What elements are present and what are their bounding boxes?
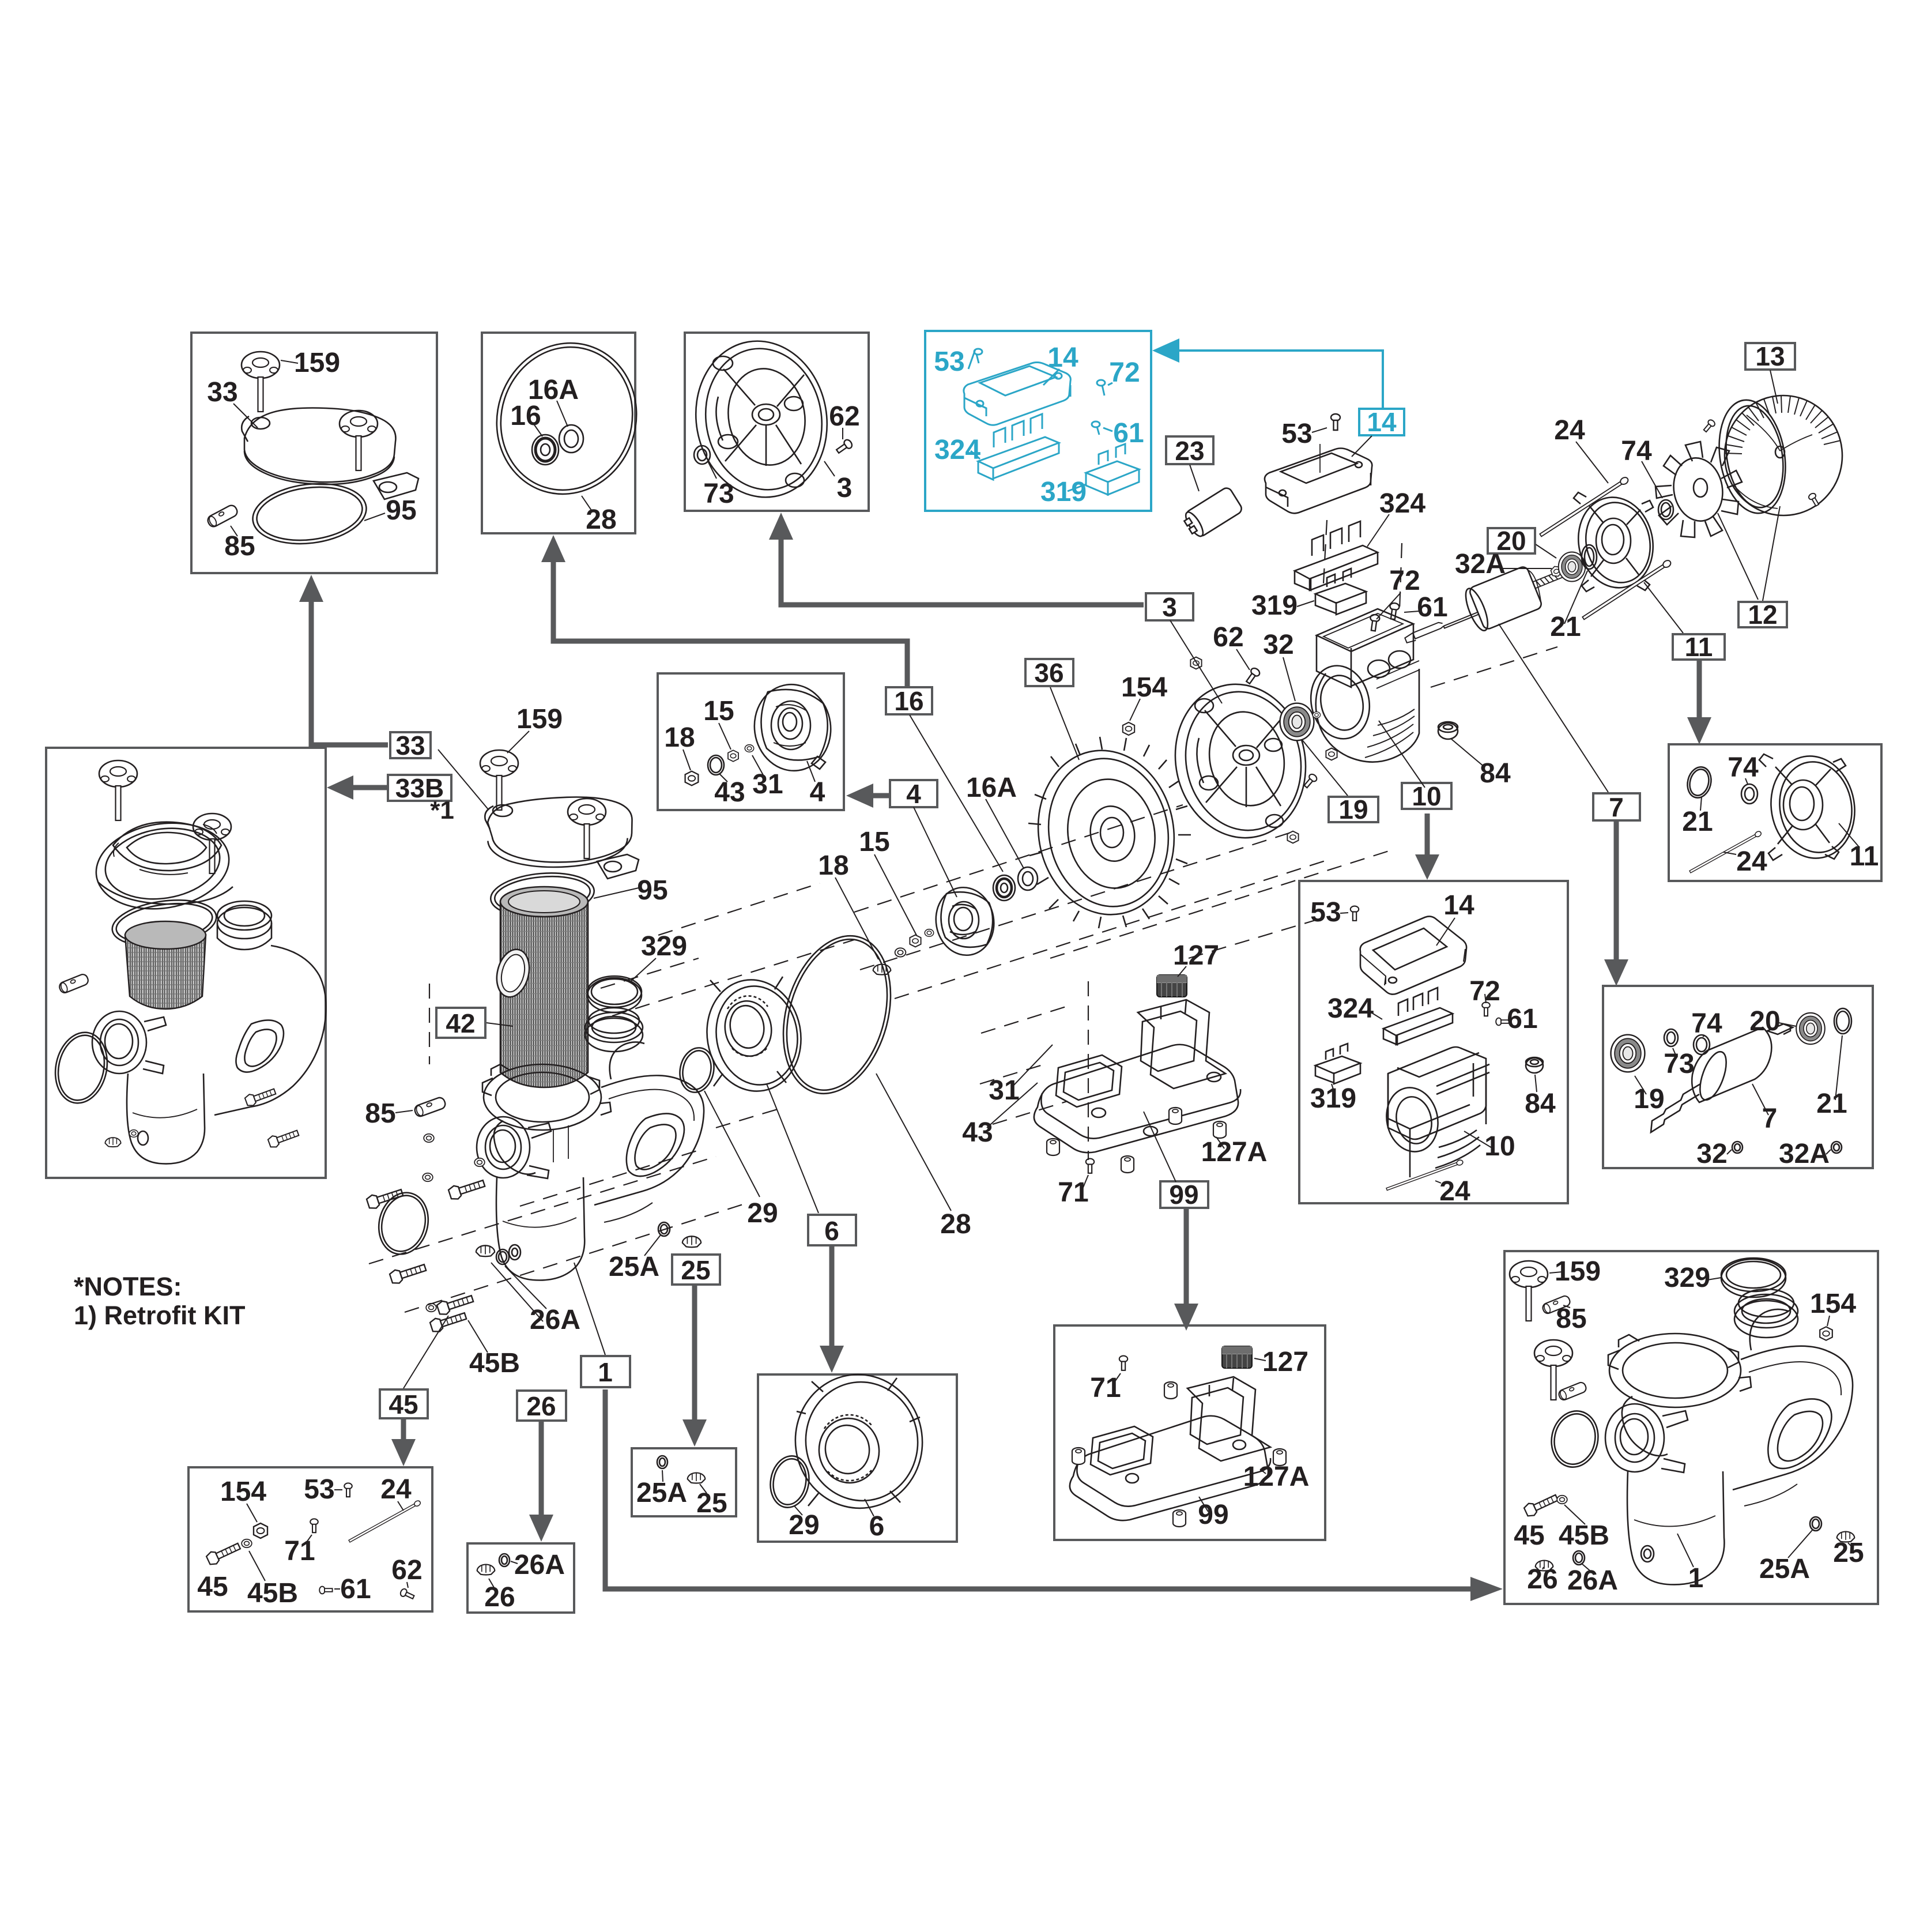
svg-text:6: 6 xyxy=(824,1216,839,1246)
svg-text:329: 329 xyxy=(641,931,687,962)
svg-text:154: 154 xyxy=(220,1477,266,1507)
svg-text:7: 7 xyxy=(1609,792,1624,822)
svg-text:26A: 26A xyxy=(514,1550,565,1580)
svg-text:159: 159 xyxy=(516,704,563,735)
svg-text:16: 16 xyxy=(510,401,541,431)
svg-text:11: 11 xyxy=(1685,632,1713,662)
svg-text:324: 324 xyxy=(934,435,980,465)
svg-text:74: 74 xyxy=(1691,1008,1722,1039)
svg-text:26: 26 xyxy=(526,1391,556,1421)
svg-text:10: 10 xyxy=(1412,781,1441,811)
svg-text:72: 72 xyxy=(1109,357,1140,388)
svg-text:127A: 127A xyxy=(1243,1462,1310,1492)
svg-text:36: 36 xyxy=(1034,658,1063,688)
svg-text:154: 154 xyxy=(1810,1289,1856,1319)
svg-text:31: 31 xyxy=(752,769,783,800)
svg-text:15: 15 xyxy=(859,827,889,857)
svg-text:29: 29 xyxy=(747,1198,778,1229)
svg-text:73: 73 xyxy=(1664,1049,1694,1079)
svg-text:1) Retrofit KIT: 1) Retrofit KIT xyxy=(74,1301,246,1330)
svg-text:11: 11 xyxy=(1850,841,1879,872)
svg-text:85: 85 xyxy=(224,531,255,562)
svg-text:33: 33 xyxy=(395,730,425,760)
svg-text:4: 4 xyxy=(906,779,921,809)
svg-text:53: 53 xyxy=(934,347,964,377)
svg-text:16A: 16A xyxy=(966,773,1017,803)
svg-text:61: 61 xyxy=(1507,1004,1537,1034)
svg-text:61: 61 xyxy=(1417,592,1447,623)
svg-text:25A: 25A xyxy=(609,1252,659,1282)
svg-text:53: 53 xyxy=(1281,419,1312,449)
svg-text:19: 19 xyxy=(1634,1084,1664,1114)
svg-text:15: 15 xyxy=(703,696,734,726)
svg-text:73: 73 xyxy=(703,479,734,509)
svg-text:53: 53 xyxy=(304,1474,334,1505)
svg-text:26: 26 xyxy=(484,1582,515,1613)
svg-text:24: 24 xyxy=(380,1474,412,1505)
svg-text:127: 127 xyxy=(1262,1347,1308,1377)
svg-text:*NOTES:: *NOTES: xyxy=(74,1272,182,1301)
svg-text:33: 33 xyxy=(207,377,237,408)
svg-text:14: 14 xyxy=(1367,407,1397,437)
svg-text:53: 53 xyxy=(1310,897,1341,928)
svg-text:72: 72 xyxy=(1389,566,1420,596)
svg-text:45B: 45B xyxy=(469,1348,520,1379)
svg-text:99: 99 xyxy=(1169,1180,1198,1210)
svg-text:24: 24 xyxy=(1736,846,1767,877)
svg-text:127A: 127A xyxy=(1201,1137,1268,1168)
svg-text:62: 62 xyxy=(1213,622,1243,653)
svg-text:84: 84 xyxy=(1525,1089,1556,1119)
svg-text:21: 21 xyxy=(1816,1089,1847,1119)
svg-text:25A: 25A xyxy=(1759,1554,1810,1584)
svg-text:21: 21 xyxy=(1550,612,1581,642)
svg-text:95: 95 xyxy=(386,495,416,526)
svg-text:28: 28 xyxy=(940,1209,971,1240)
svg-text:62: 62 xyxy=(829,401,859,432)
svg-text:24: 24 xyxy=(1554,415,1585,446)
svg-text:1: 1 xyxy=(598,1357,613,1387)
svg-text:26A: 26A xyxy=(530,1305,580,1335)
svg-text:18: 18 xyxy=(664,722,695,753)
svg-text:4: 4 xyxy=(810,777,825,808)
svg-text:159: 159 xyxy=(294,348,340,378)
svg-text:71: 71 xyxy=(1090,1373,1121,1403)
svg-text:24: 24 xyxy=(1439,1176,1470,1207)
svg-text:20: 20 xyxy=(1749,1006,1780,1037)
svg-text:85: 85 xyxy=(365,1098,395,1129)
svg-text:14: 14 xyxy=(1047,342,1078,373)
svg-text:45: 45 xyxy=(1514,1520,1544,1551)
svg-text:14: 14 xyxy=(1443,890,1474,921)
svg-text:42: 42 xyxy=(446,1008,475,1038)
svg-text:45: 45 xyxy=(197,1572,228,1602)
svg-text:43: 43 xyxy=(962,1117,993,1148)
svg-text:71: 71 xyxy=(284,1536,315,1566)
svg-text:154: 154 xyxy=(1121,672,1167,703)
svg-text:84: 84 xyxy=(1480,758,1511,789)
svg-text:13: 13 xyxy=(1755,341,1785,371)
svg-text:319: 319 xyxy=(1040,477,1087,507)
svg-text:32: 32 xyxy=(1696,1139,1727,1169)
svg-text:32A: 32A xyxy=(1455,549,1506,579)
svg-text:45B: 45B xyxy=(1559,1520,1609,1551)
svg-text:3: 3 xyxy=(837,473,853,503)
svg-text:61: 61 xyxy=(1113,418,1144,449)
svg-text:43: 43 xyxy=(714,777,745,808)
svg-text:1: 1 xyxy=(1688,1563,1704,1594)
svg-text:329: 329 xyxy=(1664,1263,1710,1293)
svg-text:26A: 26A xyxy=(1567,1565,1618,1596)
svg-text:21: 21 xyxy=(1682,807,1713,837)
svg-text:25: 25 xyxy=(681,1255,710,1285)
svg-text:25A: 25A xyxy=(636,1478,687,1508)
svg-text:74: 74 xyxy=(1621,436,1652,466)
svg-text:61: 61 xyxy=(340,1574,371,1605)
svg-text:18: 18 xyxy=(818,850,848,881)
svg-text:45: 45 xyxy=(389,1389,418,1419)
svg-text:23: 23 xyxy=(1175,436,1204,466)
svg-text:62: 62 xyxy=(391,1555,422,1585)
svg-text:19: 19 xyxy=(1338,794,1368,824)
svg-text:16: 16 xyxy=(894,686,923,716)
svg-text:6: 6 xyxy=(869,1511,885,1542)
svg-text:*1: *1 xyxy=(430,796,454,824)
svg-text:319: 319 xyxy=(1251,590,1298,621)
svg-text:3: 3 xyxy=(1162,592,1177,622)
svg-text:71: 71 xyxy=(1058,1177,1088,1208)
svg-text:74: 74 xyxy=(1728,752,1759,783)
svg-text:324: 324 xyxy=(1379,488,1425,519)
svg-text:29: 29 xyxy=(789,1510,819,1541)
svg-text:45B: 45B xyxy=(247,1578,298,1609)
svg-text:32A: 32A xyxy=(1779,1139,1830,1169)
svg-text:32: 32 xyxy=(1263,630,1293,660)
svg-text:25: 25 xyxy=(696,1488,727,1519)
svg-text:95: 95 xyxy=(637,875,667,906)
svg-text:12: 12 xyxy=(1748,600,1777,630)
svg-text:99: 99 xyxy=(1198,1500,1228,1530)
svg-text:324: 324 xyxy=(1327,993,1374,1024)
